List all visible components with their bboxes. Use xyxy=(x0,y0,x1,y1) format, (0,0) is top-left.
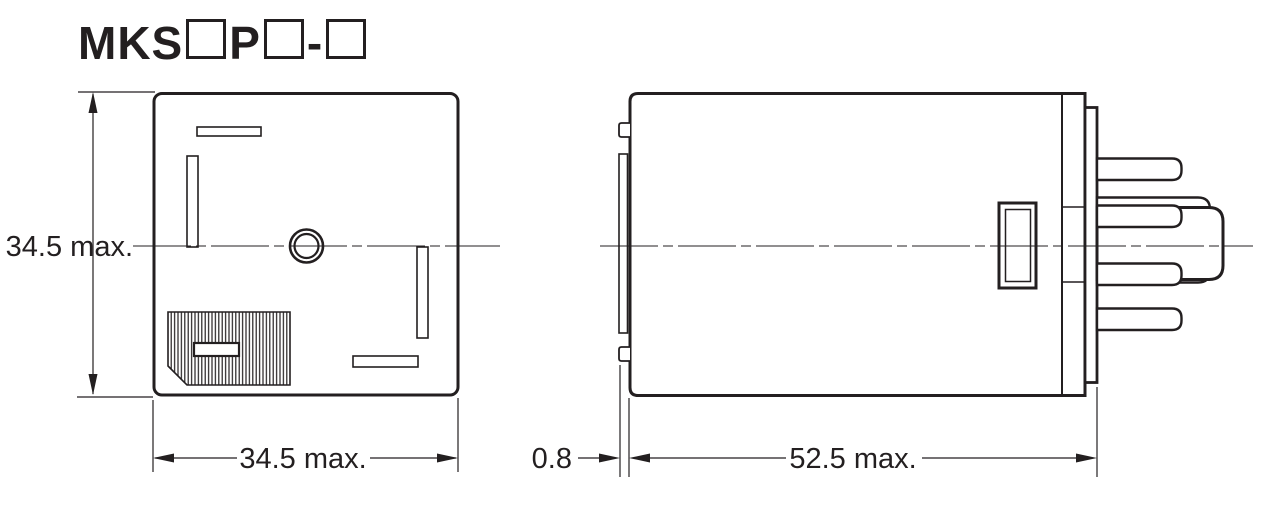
side-top-latch-tab xyxy=(619,123,630,137)
arrowhead-right xyxy=(437,454,458,463)
arrowhead-up xyxy=(89,92,98,113)
flange-thickness-dimension-label: 0.8 xyxy=(532,443,572,475)
front-view xyxy=(133,94,500,396)
arrowhead-right xyxy=(599,454,620,463)
side-pin-4 xyxy=(1097,309,1182,331)
side-terminal-base-plate xyxy=(1085,108,1097,383)
front-bottom-slot xyxy=(353,356,418,367)
dimension-drawing-page: MKSP- xyxy=(0,0,1262,506)
body-depth-dimension-label: 52.5 max. xyxy=(789,443,916,475)
front-left-slot xyxy=(187,156,198,247)
arrowhead-left xyxy=(153,454,174,463)
side-pin-2 xyxy=(1097,206,1182,228)
side-pin-3 xyxy=(1097,264,1182,286)
front-width-dimension-label: 34.5 max. xyxy=(239,443,366,475)
front-height-dimension-label: 34.5 max. xyxy=(6,231,133,263)
side-pin-1 xyxy=(1097,159,1182,181)
side-front-flange-plate xyxy=(619,154,628,333)
front-top-slot xyxy=(197,127,261,136)
side-bottom-latch-tab xyxy=(619,347,630,361)
arrowhead-left xyxy=(629,454,650,463)
arrowhead-right xyxy=(1076,454,1097,463)
relay-dimension-drawing-svg: 34.5 max. 34.5 max. xyxy=(0,0,1262,506)
arrowhead-down xyxy=(89,374,98,395)
side-view xyxy=(600,94,1253,396)
front-label-slot xyxy=(194,343,239,356)
front-right-slot xyxy=(417,247,428,338)
